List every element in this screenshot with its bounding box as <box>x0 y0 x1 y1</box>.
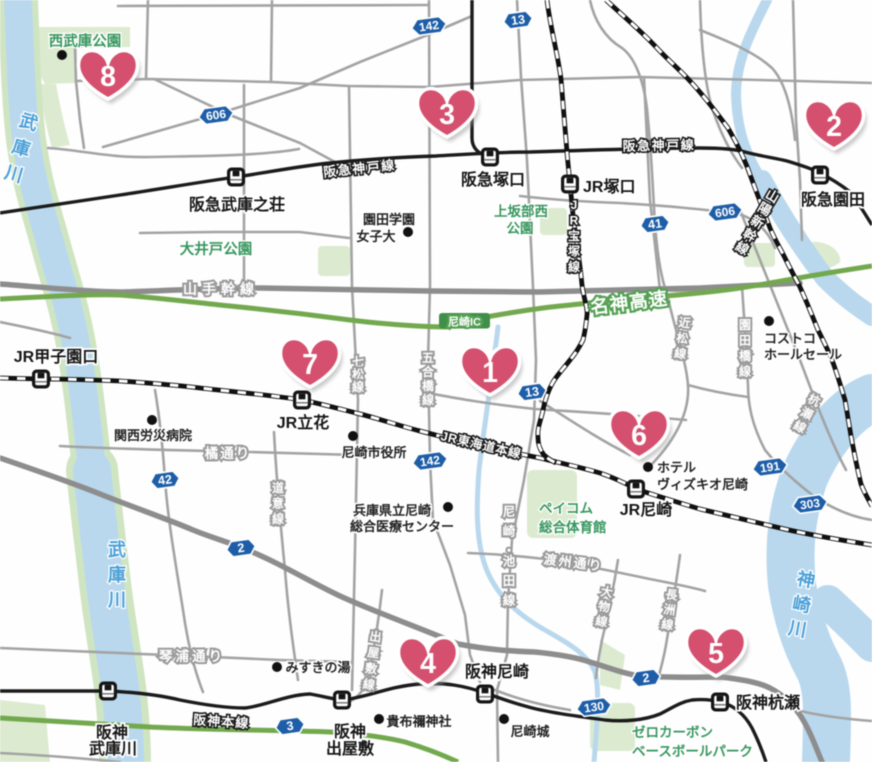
svg-text:コストコ: コストコ <box>764 331 816 346</box>
svg-text:みすきの湯: みすきの湯 <box>285 660 350 675</box>
svg-text:606: 606 <box>205 107 227 124</box>
svg-text:出屋敷: 出屋敷 <box>326 739 375 758</box>
svg-text:武庫川: 武庫川 <box>89 739 137 758</box>
svg-text:13: 13 <box>524 384 540 400</box>
svg-text:8: 8 <box>100 61 116 93</box>
svg-text:142: 142 <box>418 18 440 35</box>
svg-text:西武庫公園: 西武庫公園 <box>49 32 122 50</box>
svg-text:阪神: 阪神 <box>334 722 366 741</box>
svg-text:ホールセール: ホールセール <box>764 347 842 362</box>
svg-text:兵庫県立尼崎: 兵庫県立尼崎 <box>353 503 431 518</box>
svg-text:七松線: 七松線 <box>352 355 364 394</box>
svg-text:尼崎城: 尼崎城 <box>510 724 549 739</box>
svg-text:303: 303 <box>799 496 821 513</box>
svg-text:阪急園田: 阪急園田 <box>801 190 865 209</box>
svg-text:総合医療センター: 総合医療センター <box>350 519 454 534</box>
svg-text:武庫川: 武庫川 <box>107 540 126 610</box>
svg-text:606: 606 <box>714 204 736 221</box>
svg-text:JR甲子園口: JR甲子園口 <box>14 348 98 366</box>
svg-text:阪急神戸線: 阪急神戸線 <box>623 137 696 153</box>
svg-text:JR尼崎: JR尼崎 <box>620 500 672 519</box>
svg-text:阪急塚口: 阪急塚口 <box>461 170 525 189</box>
svg-text:ホテル: ホテル <box>657 460 696 475</box>
svg-text:7: 7 <box>302 349 318 381</box>
svg-text:阪神尼崎: 阪神尼崎 <box>465 662 529 681</box>
svg-text:3: 3 <box>439 99 455 131</box>
svg-text:琴浦通り: 琴浦通り <box>159 648 225 664</box>
svg-text:大井戸公園: 大井戸公園 <box>180 240 253 258</box>
svg-text:橘通り: 橘通り <box>204 446 252 461</box>
svg-text:園田橋線: 園田橋線 <box>739 318 752 379</box>
svg-text:2: 2 <box>826 111 842 143</box>
svg-text:ベースボールパーク: ベースボールパーク <box>632 744 753 759</box>
svg-text:道意線: 道意線 <box>272 480 284 526</box>
svg-text:尼崎IC: 尼崎IC <box>448 315 481 329</box>
svg-text:4: 4 <box>420 648 436 680</box>
svg-text:総合体育館: 総合体育館 <box>539 519 607 535</box>
svg-text:42: 42 <box>157 472 173 488</box>
svg-text:五合橋線: 五合橋線 <box>422 351 435 407</box>
svg-text:ペイコム: ペイコム <box>539 501 593 516</box>
svg-text:6: 6 <box>631 420 647 452</box>
svg-text:阪神杭瀬: 阪神杭瀬 <box>736 693 800 712</box>
svg-text:13: 13 <box>510 12 526 28</box>
svg-text:関西労災病院: 関西労災病院 <box>114 428 192 443</box>
svg-text:ゼロカーボン: ゼロカーボン <box>632 724 713 740</box>
svg-text:尼崎市役所: 尼崎市役所 <box>341 445 406 460</box>
svg-text:山手幹線: 山手幹線 <box>183 281 259 297</box>
svg-text:ヴィズキオ尼崎: ヴィズキオ尼崎 <box>657 477 748 492</box>
svg-text:貴布禰神社: 貴布禰神社 <box>386 714 451 729</box>
svg-text:園田学園: 園田学園 <box>363 212 415 227</box>
svg-text:阪急武庫之荘: 阪急武庫之荘 <box>189 195 285 214</box>
svg-text:公園: 公園 <box>507 221 534 236</box>
svg-text:阪神: 阪神 <box>96 723 128 742</box>
svg-text:5: 5 <box>708 638 724 670</box>
svg-text:41: 41 <box>647 216 663 232</box>
svg-text:女子大: 女子大 <box>356 229 395 244</box>
svg-text:JR立花: JR立花 <box>277 413 329 432</box>
svg-text:JR塚口: JR塚口 <box>583 178 635 196</box>
svg-text:1: 1 <box>482 357 498 389</box>
svg-text:142: 142 <box>419 453 441 470</box>
svg-text:130: 130 <box>583 699 605 716</box>
svg-text:上坂部西: 上坂部西 <box>494 203 548 219</box>
svg-text:191: 191 <box>759 459 781 476</box>
